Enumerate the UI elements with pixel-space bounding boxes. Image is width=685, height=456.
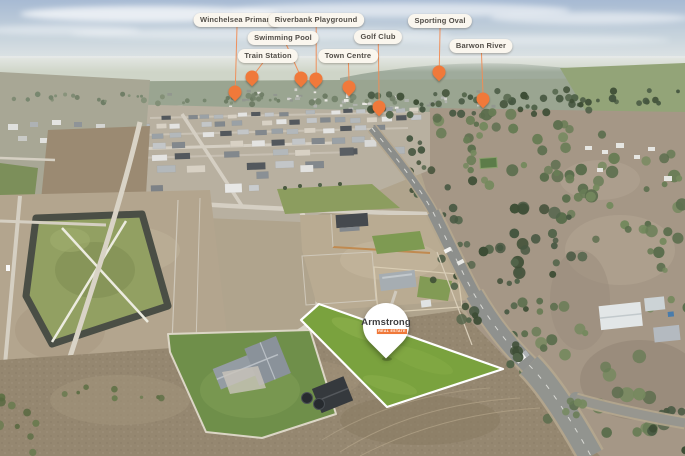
armstrong-lot-marker: Armstrong REAL ESTATE xyxy=(353,293,418,358)
aerial-site-map: Winchelsea PrimaryRiverbank PlaygroundSp… xyxy=(0,0,685,456)
swimming-pool-label: Swimming Pool xyxy=(248,31,319,45)
amenity-markers-layer: Winchelsea PrimaryRiverbank PlaygroundSp… xyxy=(0,0,685,456)
winchelsea-primary-pin xyxy=(226,83,244,101)
sporting-oval-label: Sporting Oval xyxy=(408,14,472,28)
armstrong-logo: Armstrong REAL ESTATE xyxy=(363,303,409,349)
golf-club-label: Golf Club xyxy=(354,30,402,44)
riverbank-playground-pin xyxy=(307,70,325,88)
riverbank-playground-label: Riverbank Playground xyxy=(268,13,364,27)
riverbank-playground-connector xyxy=(315,20,316,79)
golf-club-pin xyxy=(370,98,388,116)
barwon-river-label: Barwon River xyxy=(449,39,512,53)
golf-club-connector xyxy=(377,37,379,107)
town-centre-label: Town Centre xyxy=(318,49,378,63)
train-station-pin xyxy=(243,68,261,86)
barwon-river-pin xyxy=(474,90,492,108)
armstrong-brand-tag: REAL ESTATE xyxy=(377,328,407,333)
armstrong-brand-text: Armstrong xyxy=(361,316,410,327)
town-centre-pin xyxy=(340,78,358,96)
sporting-oval-pin xyxy=(430,63,448,81)
train-station-label: Train Station xyxy=(238,49,298,63)
swimming-pool-pin xyxy=(292,69,310,87)
